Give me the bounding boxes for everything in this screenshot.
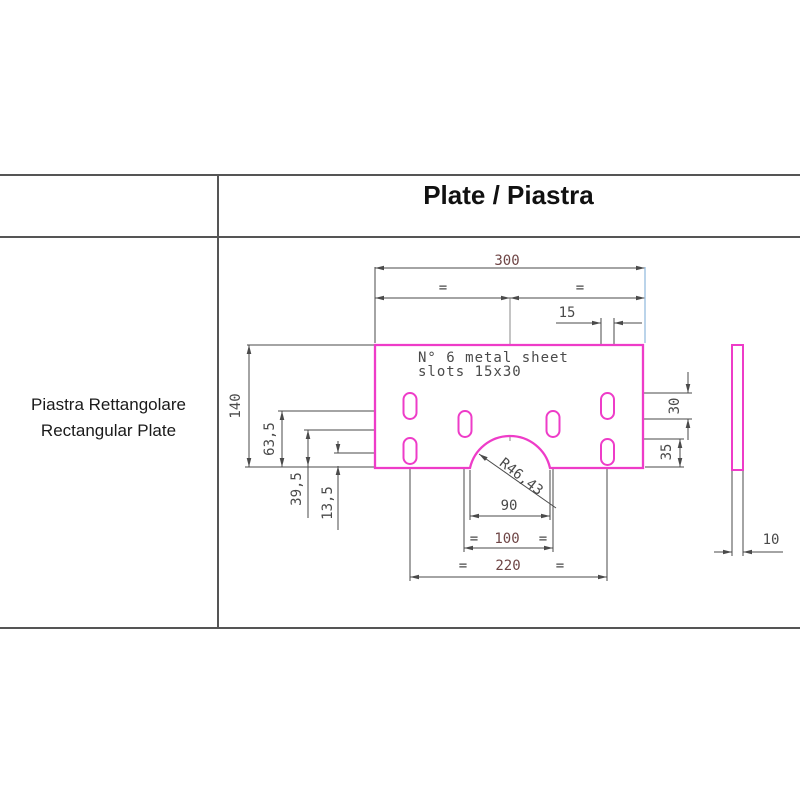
dim-inner-span: 100: [494, 531, 519, 547]
dim-height-total: 140: [228, 393, 244, 418]
slot-mid-left: [459, 411, 472, 437]
dim-width-total: 300: [494, 253, 519, 269]
slot-bottom-right: [601, 439, 614, 465]
dim-arc-chord: 90: [501, 498, 518, 514]
note-line2: slots 15x30: [418, 364, 522, 380]
dim-inner-eq-left: =: [470, 531, 478, 547]
dim-slot-width: 15: [559, 305, 576, 321]
dim-thickness: 10: [763, 532, 780, 548]
dim-equal-left: =: [439, 280, 447, 296]
dim-inner-eq-right: =: [539, 531, 547, 547]
dim-top-slot-offset: 63,5: [262, 422, 278, 456]
slot-top-right: [601, 393, 614, 419]
dim-outer-eq-left: =: [459, 558, 467, 574]
dim-bottom-slot-offset: 13,5: [320, 486, 336, 520]
slot-bottom-left: [404, 438, 417, 464]
slot-mid-right: [547, 411, 560, 437]
dim-mid-slot-offset: 39,5: [289, 472, 305, 506]
dim-right-offset: 35: [659, 444, 675, 461]
dim-equal-right: =: [576, 280, 584, 296]
plate-side-view: [732, 345, 743, 470]
dim-outer-span: 220: [495, 558, 520, 574]
dim-slot-length: 30: [667, 398, 683, 415]
slot-top-left: [404, 393, 417, 419]
dim-outer-eq-right: =: [556, 558, 564, 574]
